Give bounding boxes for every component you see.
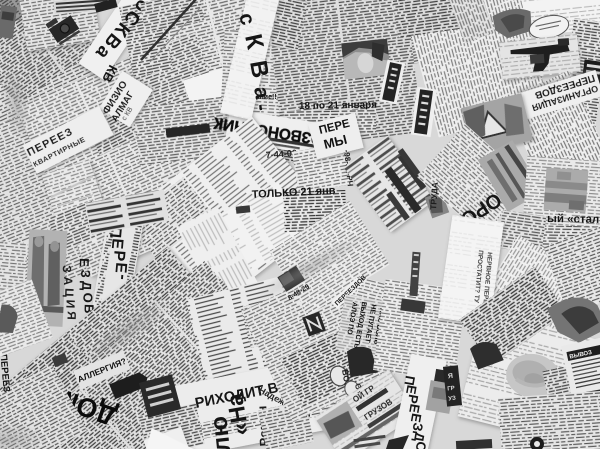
svg-text:З: З	[60, 265, 74, 273]
svg-text:лю: лю	[205, 415, 236, 449]
svg-text:Я: Я	[65, 311, 79, 320]
svg-text:А: А	[61, 276, 75, 285]
svg-text:Е: Е	[108, 238, 126, 250]
svg-text:Я: Я	[448, 373, 454, 380]
svg-text:ый «стал: ый «стал	[547, 213, 599, 226]
svg-text:О: О	[412, 440, 429, 449]
svg-text:УЗ: УЗ	[448, 396, 456, 403]
svg-text:Р: Р	[110, 250, 128, 262]
svg-text:З: З	[78, 269, 93, 278]
svg-text:Д: Д	[79, 281, 94, 292]
svg-text:И: И	[63, 299, 77, 308]
svg-text:Ц: Ц	[62, 288, 76, 297]
svg-text:О: О	[80, 292, 95, 303]
svg-text:Е: Е	[77, 258, 92, 268]
svg-text:ТРУДА: ТРУДА	[428, 182, 440, 210]
svg-text:Е: Е	[111, 262, 129, 274]
svg-text:ГР: ГР	[447, 386, 455, 393]
